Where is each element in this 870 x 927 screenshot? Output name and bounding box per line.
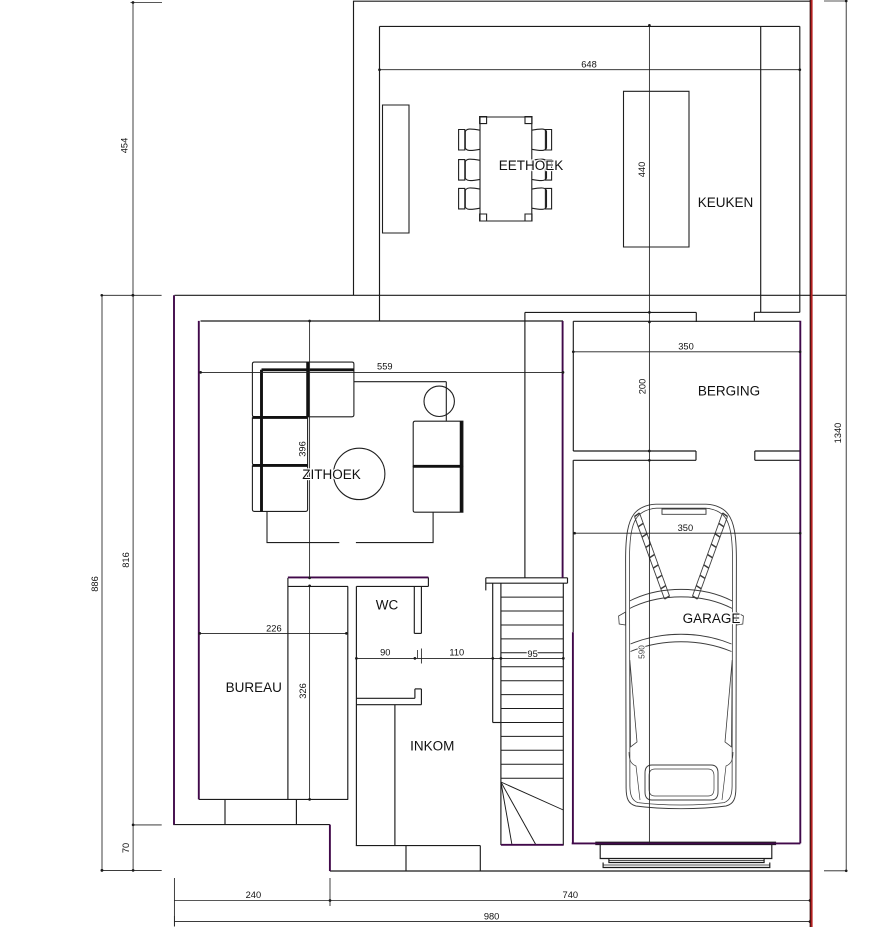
svg-text:590: 590 (637, 645, 646, 659)
svg-text:WC: WC (376, 598, 399, 613)
svg-text:816: 816 (121, 552, 131, 568)
svg-text:1340: 1340 (833, 423, 843, 444)
svg-text:440: 440 (637, 162, 647, 178)
svg-text:BERGING: BERGING (698, 384, 760, 399)
svg-text:ZITHOEK: ZITHOEK (302, 467, 361, 482)
svg-text:350: 350 (678, 342, 694, 352)
svg-text:980: 980 (484, 911, 500, 921)
svg-text:350: 350 (678, 523, 694, 533)
svg-text:240: 240 (246, 890, 262, 900)
svg-text:70: 70 (121, 843, 131, 853)
svg-text:INKOM: INKOM (410, 738, 454, 753)
svg-text:740: 740 (563, 890, 579, 900)
svg-text:110: 110 (449, 648, 464, 658)
svg-text:326: 326 (298, 683, 308, 699)
svg-text:648: 648 (581, 59, 597, 69)
svg-text:226: 226 (266, 623, 282, 633)
svg-text:GARAGE: GARAGE (683, 611, 741, 626)
svg-text:886: 886 (90, 576, 100, 592)
svg-text:454: 454 (120, 138, 130, 154)
svg-text:90: 90 (380, 648, 390, 658)
svg-text:396: 396 (298, 441, 308, 457)
svg-text:200: 200 (638, 379, 648, 395)
svg-text:95: 95 (527, 649, 537, 659)
svg-text:559: 559 (377, 361, 393, 371)
svg-text:KEUKEN: KEUKEN (698, 195, 754, 210)
svg-text:EETHOEK: EETHOEK (499, 158, 564, 173)
svg-text:BUREAU: BUREAU (226, 680, 282, 695)
